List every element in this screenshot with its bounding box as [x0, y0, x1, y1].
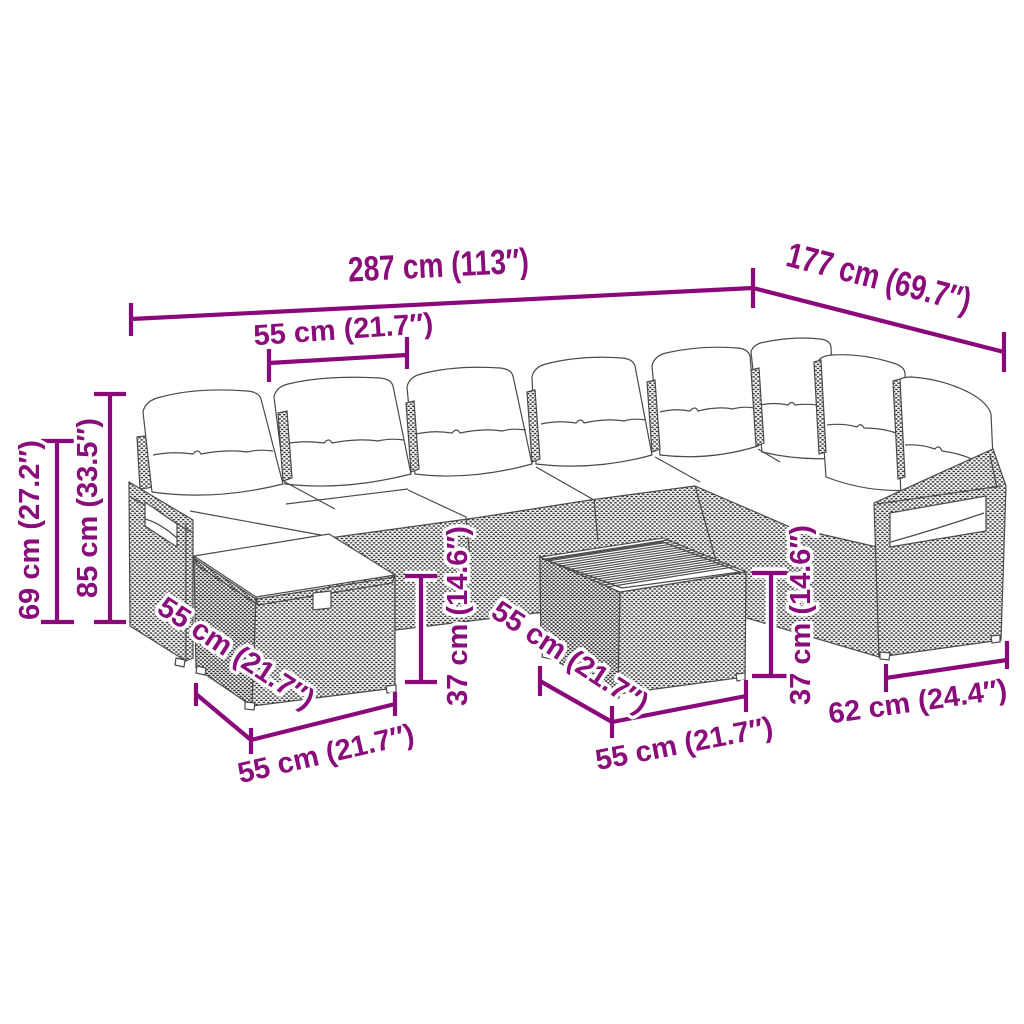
- svg-text:287 cm (113″): 287 cm (113″): [347, 241, 530, 289]
- svg-text:55 cm (21.7″): 55 cm (21.7″): [235, 718, 418, 790]
- svg-text:69 cm (27.2″): 69 cm (27.2″): [14, 440, 46, 620]
- svg-text:37 cm (14.6″): 37 cm (14.6″): [785, 525, 817, 705]
- svg-text:37 cm (14.6″): 37 cm (14.6″): [442, 526, 474, 706]
- svg-text:85 cm (33.5″): 85 cm (33.5″): [72, 418, 104, 598]
- svg-text:62 cm (24.4″): 62 cm (24.4″): [826, 674, 1009, 731]
